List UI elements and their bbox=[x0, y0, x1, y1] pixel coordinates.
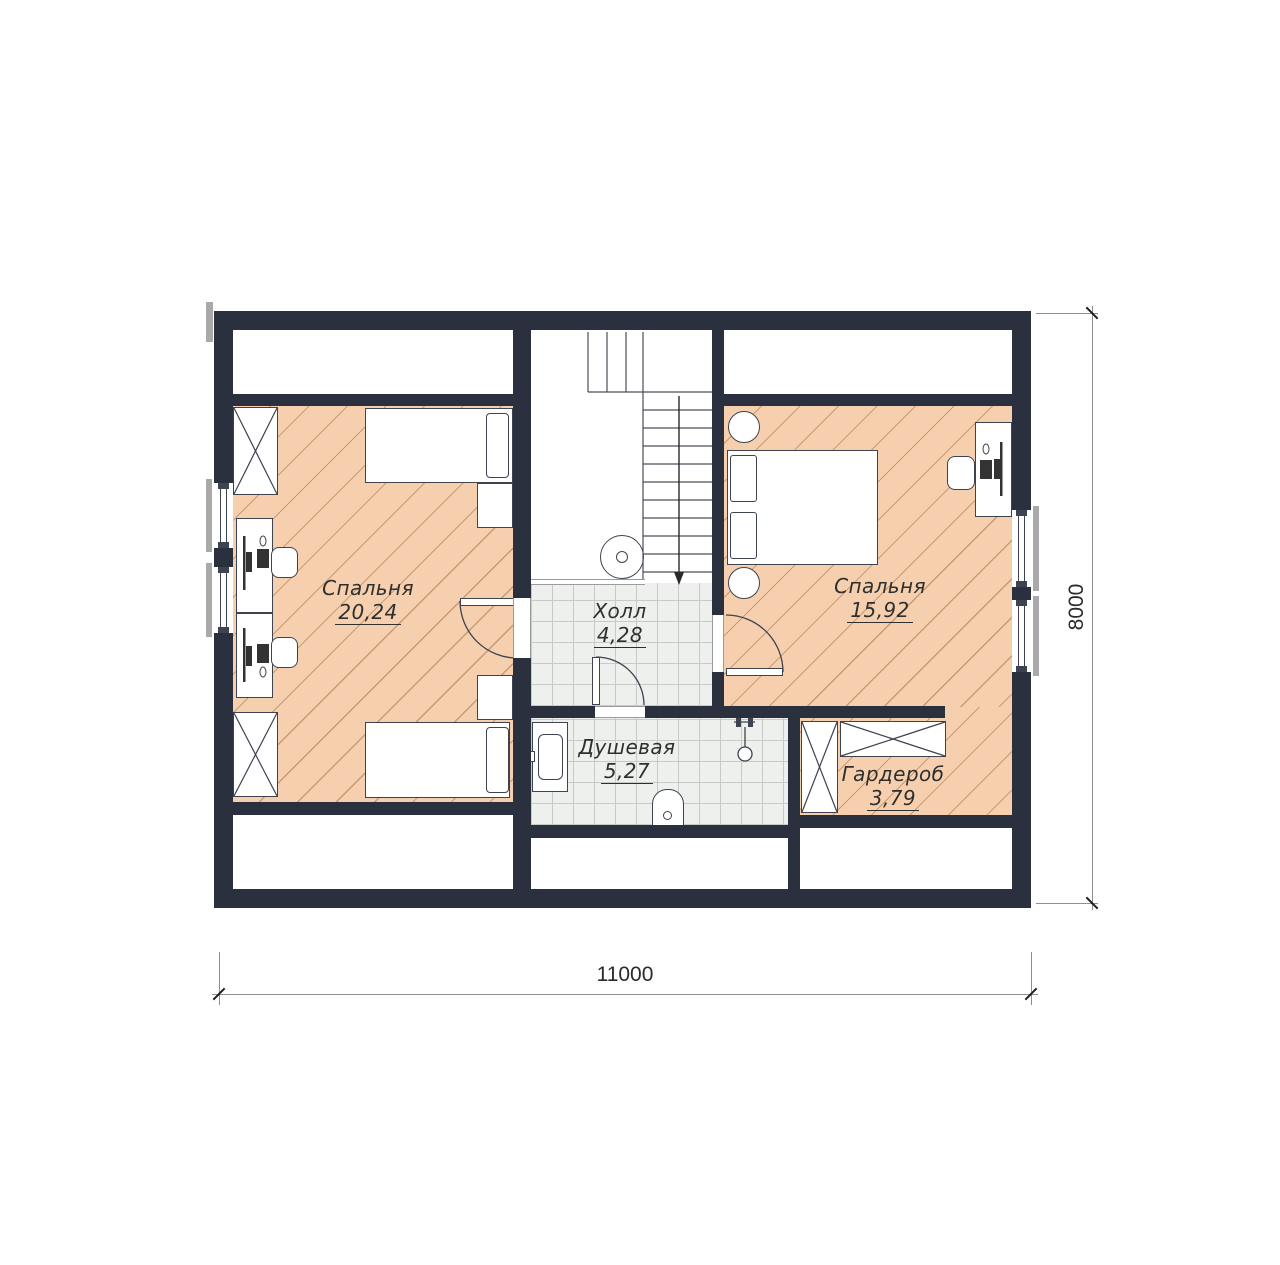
wall-exterior-right-b bbox=[1012, 672, 1031, 908]
room-area: 4,28 bbox=[594, 624, 646, 648]
room-label-wardrobe: Гардероб 3,79 bbox=[803, 763, 983, 811]
wall-stair-east-a bbox=[712, 330, 724, 615]
room-name: Спальня bbox=[268, 577, 468, 599]
wall-left-pier bbox=[214, 548, 233, 567]
room-area: 5,27 bbox=[601, 760, 653, 784]
wall-exterior-right bbox=[1012, 311, 1031, 510]
door-opening bbox=[595, 706, 645, 718]
wall-bedroomL-east-b bbox=[513, 658, 531, 889]
room-area: 3,79 bbox=[867, 787, 919, 811]
wall-knee-left bbox=[233, 394, 531, 406]
door-leaf bbox=[592, 657, 600, 705]
window bbox=[1012, 600, 1031, 672]
floor-plan: Спальня 20,24 Холл 4,28 Спальня 15,92 Ду… bbox=[0, 0, 1280, 1265]
extension-line bbox=[1031, 952, 1032, 1005]
wall-exterior-left bbox=[214, 311, 233, 483]
door-leaf bbox=[460, 598, 517, 606]
room-area: 20,24 bbox=[335, 601, 400, 625]
room-name: Душевая bbox=[537, 736, 717, 758]
room-name: Холл bbox=[545, 600, 695, 622]
door-opening bbox=[513, 598, 531, 658]
wall-knee-right bbox=[712, 394, 1012, 406]
wall-stair-east-b bbox=[712, 672, 724, 708]
room-area: 15,92 bbox=[847, 599, 912, 623]
room-name: Гардероб bbox=[803, 763, 983, 785]
dimension-value-horizontal: 11000 bbox=[560, 963, 690, 987]
wall-bedroomL-south bbox=[233, 802, 531, 815]
window bbox=[214, 567, 233, 633]
extension-line bbox=[219, 952, 220, 1005]
stair-landing-edge bbox=[531, 579, 645, 585]
door-opening bbox=[712, 615, 724, 672]
stair-down-arrow bbox=[674, 396, 684, 585]
room-name: Спальня bbox=[780, 575, 980, 597]
stairs bbox=[588, 332, 712, 583]
window bbox=[1012, 510, 1031, 587]
wall-wardrobe-west bbox=[788, 706, 800, 889]
dimension-value-vertical: 8000 bbox=[1065, 542, 1089, 672]
wall-shower-south bbox=[513, 825, 800, 838]
dimension-line-horizontal bbox=[212, 994, 1038, 995]
room-label-shower: Душевая 5,27 bbox=[537, 736, 717, 784]
room-label-hall: Холл 4,28 bbox=[545, 600, 695, 648]
wall-wardrobe-south bbox=[788, 815, 1012, 828]
wall-right-pier bbox=[1012, 587, 1031, 600]
wall-bedroomL-east-a bbox=[513, 330, 531, 598]
door-leaf bbox=[726, 668, 783, 676]
room-label-bedroom-left: Спальня 20,24 bbox=[268, 577, 468, 625]
wall-exterior-left-b bbox=[214, 633, 233, 908]
window bbox=[214, 483, 233, 548]
wall-shower-north-a bbox=[531, 706, 595, 718]
dimension-line-vertical bbox=[1092, 306, 1093, 910]
room-label-bedroom-right: Спальня 15,92 bbox=[780, 575, 980, 623]
wall-exterior-top bbox=[214, 311, 1031, 330]
wall-exterior-bottom bbox=[214, 889, 1031, 908]
extension-line bbox=[1036, 903, 1098, 904]
extension-line bbox=[1036, 313, 1098, 314]
shower-head bbox=[734, 718, 755, 761]
